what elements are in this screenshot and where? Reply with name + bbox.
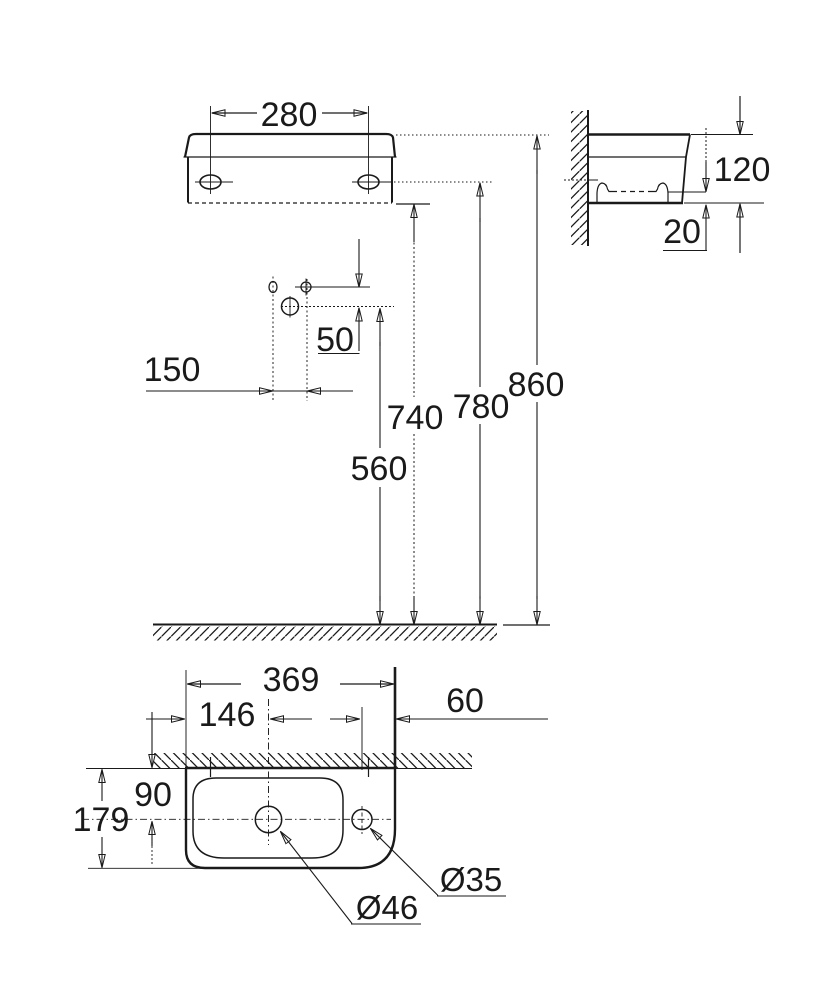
dim-label-146: 146	[199, 696, 256, 734]
dimension-drawing-svg: 280 120 20	[0, 0, 834, 1000]
wall-hatch	[571, 111, 588, 245]
dim-label-150: 150	[144, 351, 201, 389]
height-dimensions: 560 740 780 860	[351, 136, 565, 625]
inner-bowl-outline	[193, 778, 343, 858]
dim-label-740: 740	[387, 399, 444, 437]
dim-label-120: 120	[714, 151, 771, 189]
dim-label-860: 860	[508, 366, 565, 404]
side-view: 120 20	[564, 96, 770, 253]
floor	[153, 625, 550, 641]
dim-label-280: 280	[261, 96, 318, 134]
bracket-profile-left	[597, 183, 612, 203]
dim-label-780: 780	[453, 388, 510, 426]
top-view: 369 146 60 90 179 Ø46 Ø35	[73, 661, 548, 926]
wall-hatch	[154, 753, 472, 769]
basin-outline	[186, 768, 395, 868]
dim-label-179: 179	[73, 801, 130, 839]
floor-hatch	[153, 627, 497, 641]
faucet-detail: 50 150	[144, 239, 394, 401]
dim-label-90: 90	[134, 776, 172, 814]
dim-label-60: 60	[446, 682, 484, 720]
dim-label-tap-diameter: Ø35	[440, 861, 502, 898]
dim-label-20: 20	[663, 213, 701, 251]
front-view: 280	[184, 96, 550, 204]
drain-leader-line	[281, 832, 353, 924]
dim-label-560: 560	[351, 450, 408, 488]
dim-label-drain-diameter: Ø46	[356, 889, 418, 926]
bracket-profile-right	[653, 183, 668, 203]
basin-right-edge	[682, 135, 690, 204]
technical-drawing-canvas: 280 120 20	[0, 0, 834, 1000]
dim-label-50: 50	[316, 321, 354, 359]
dim-label-369: 369	[263, 661, 320, 699]
basin-rim-outline	[185, 134, 395, 157]
